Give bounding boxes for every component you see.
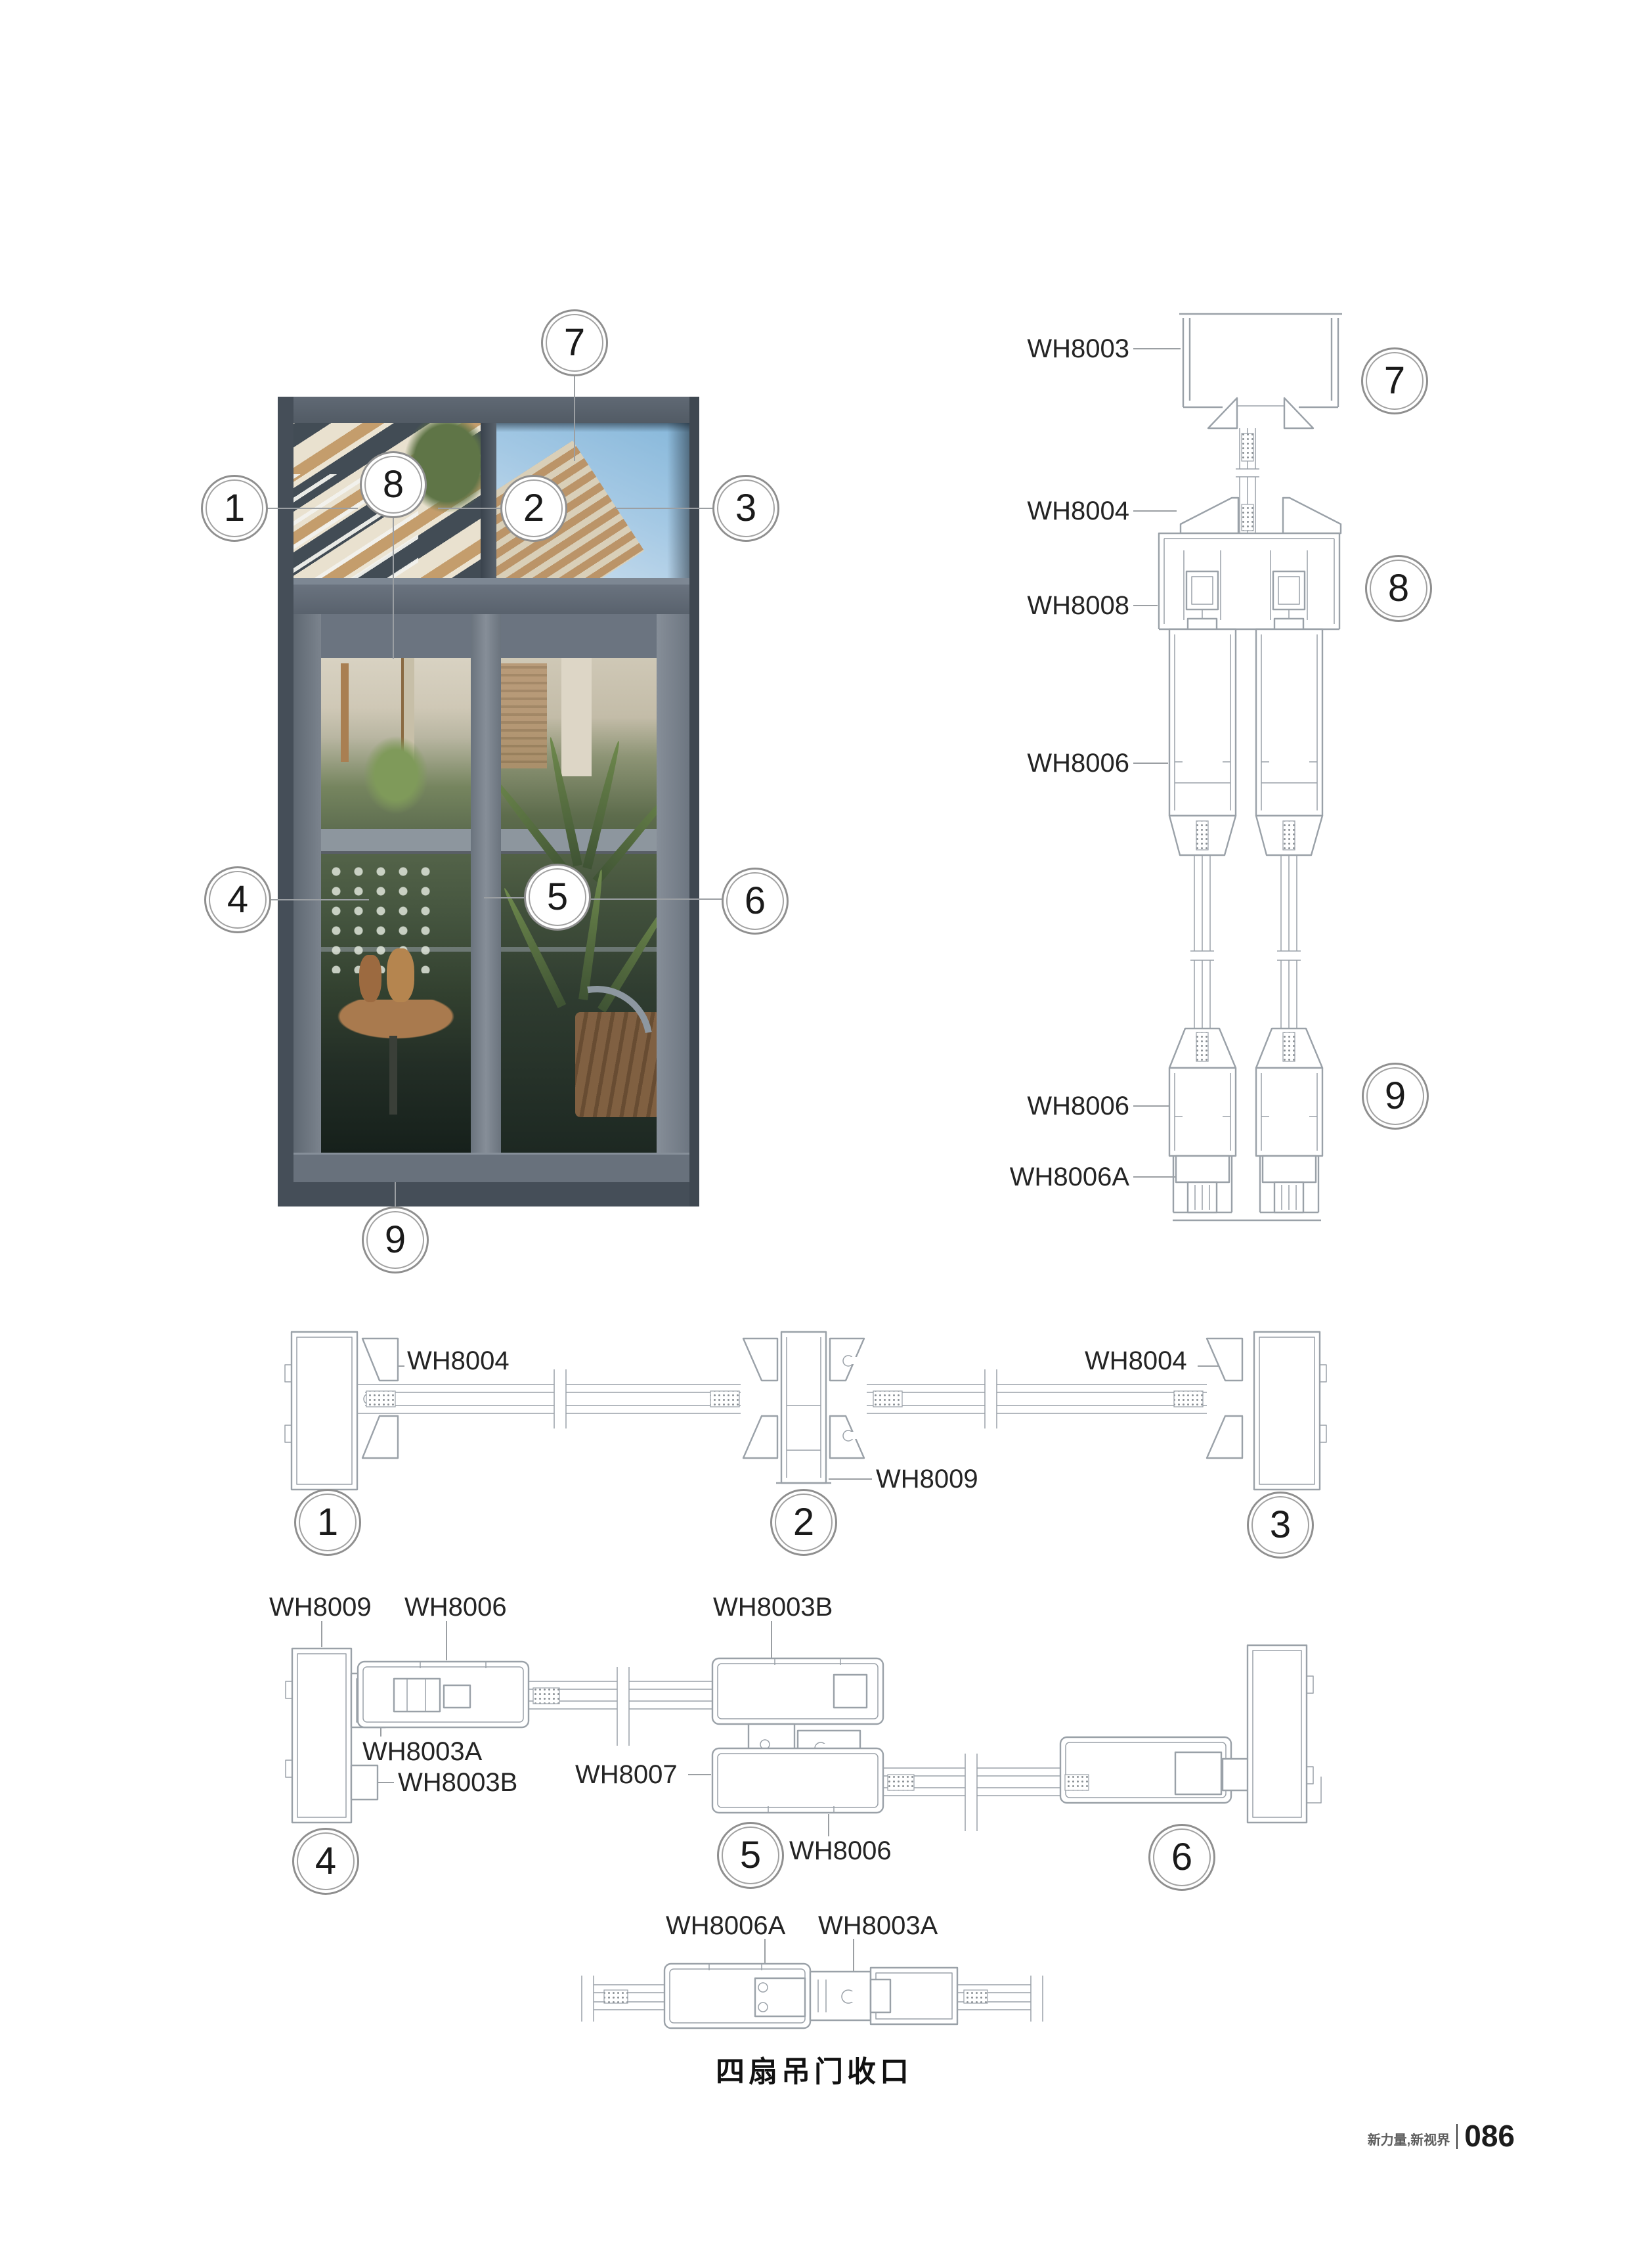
- part-label-wh8004: WH8004: [1027, 497, 1129, 525]
- section-callout-5: 5: [717, 1822, 784, 1889]
- part-label-wh8004: WH8004: [1085, 1346, 1187, 1375]
- part-label-wh8003: WH8003: [1027, 334, 1129, 363]
- photo-callout-3: 3: [712, 475, 779, 542]
- part-label-wh8003a: WH8003A: [362, 1737, 482, 1766]
- part-label-wh8009: WH8009: [876, 1465, 978, 1494]
- part-label-wh8003b: WH8003B: [398, 1768, 517, 1797]
- section-callout-8: 8: [1365, 555, 1432, 622]
- page-number: 086: [1464, 2123, 1515, 2149]
- section-callout-4: 4: [292, 1828, 359, 1895]
- photo-callout-1: 1: [201, 475, 268, 542]
- part-label-wh8004: WH8004: [407, 1346, 510, 1375]
- part-label-wh8003b: WH8003B: [713, 1593, 833, 1622]
- part-label-wh8009: WH8009: [269, 1593, 372, 1622]
- closure-section-drawing: [582, 1964, 1043, 2028]
- footer-slogan: 新力量,新视界: [1368, 2132, 1450, 2149]
- photo-callout-9: 9: [362, 1206, 429, 1273]
- vertical-section-drawing: [1159, 314, 1342, 1220]
- photo-callout-7: 7: [541, 309, 608, 376]
- catalog-page: 7 1 8 2 3 4 5 6 9 7 8 9 1 2 3 4 5 6 WH80…: [0, 0, 1652, 2258]
- section-callout-3: 3: [1247, 1492, 1314, 1559]
- photo-callout-2: 2: [500, 475, 567, 542]
- part-label-wh8003a: WH8003A: [818, 1911, 938, 1940]
- photo-callout-4: 4: [204, 866, 271, 933]
- part-label-wh8006: WH8006: [404, 1593, 507, 1622]
- photo-callout-8: 8: [360, 451, 427, 518]
- part-label-wh8006: WH8006: [1027, 1092, 1129, 1120]
- footer: 新力量,新视界 086: [1368, 2123, 1515, 2149]
- section-callout-2: 2: [770, 1489, 837, 1556]
- part-label-wh8007: WH8007: [575, 1760, 678, 1789]
- section-callout-7: 7: [1361, 347, 1428, 414]
- photo-callout-6: 6: [722, 868, 789, 935]
- section-callout-9: 9: [1362, 1063, 1429, 1130]
- photo-callout-5: 5: [524, 864, 591, 931]
- part-label-wh8006: WH8006: [1027, 749, 1129, 778]
- footer-divider: [1456, 2124, 1458, 2149]
- drawing-caption: 四扇吊门收口: [716, 2048, 913, 2090]
- part-label-wh8006: WH8006: [789, 1836, 892, 1865]
- part-label-wh8006a: WH8006A: [1010, 1162, 1129, 1191]
- part-label-wh8006a: WH8006A: [666, 1911, 785, 1940]
- section-callout-1: 1: [294, 1489, 361, 1556]
- part-label-wh8008: WH8008: [1027, 591, 1129, 620]
- section-callout-6: 6: [1148, 1824, 1215, 1891]
